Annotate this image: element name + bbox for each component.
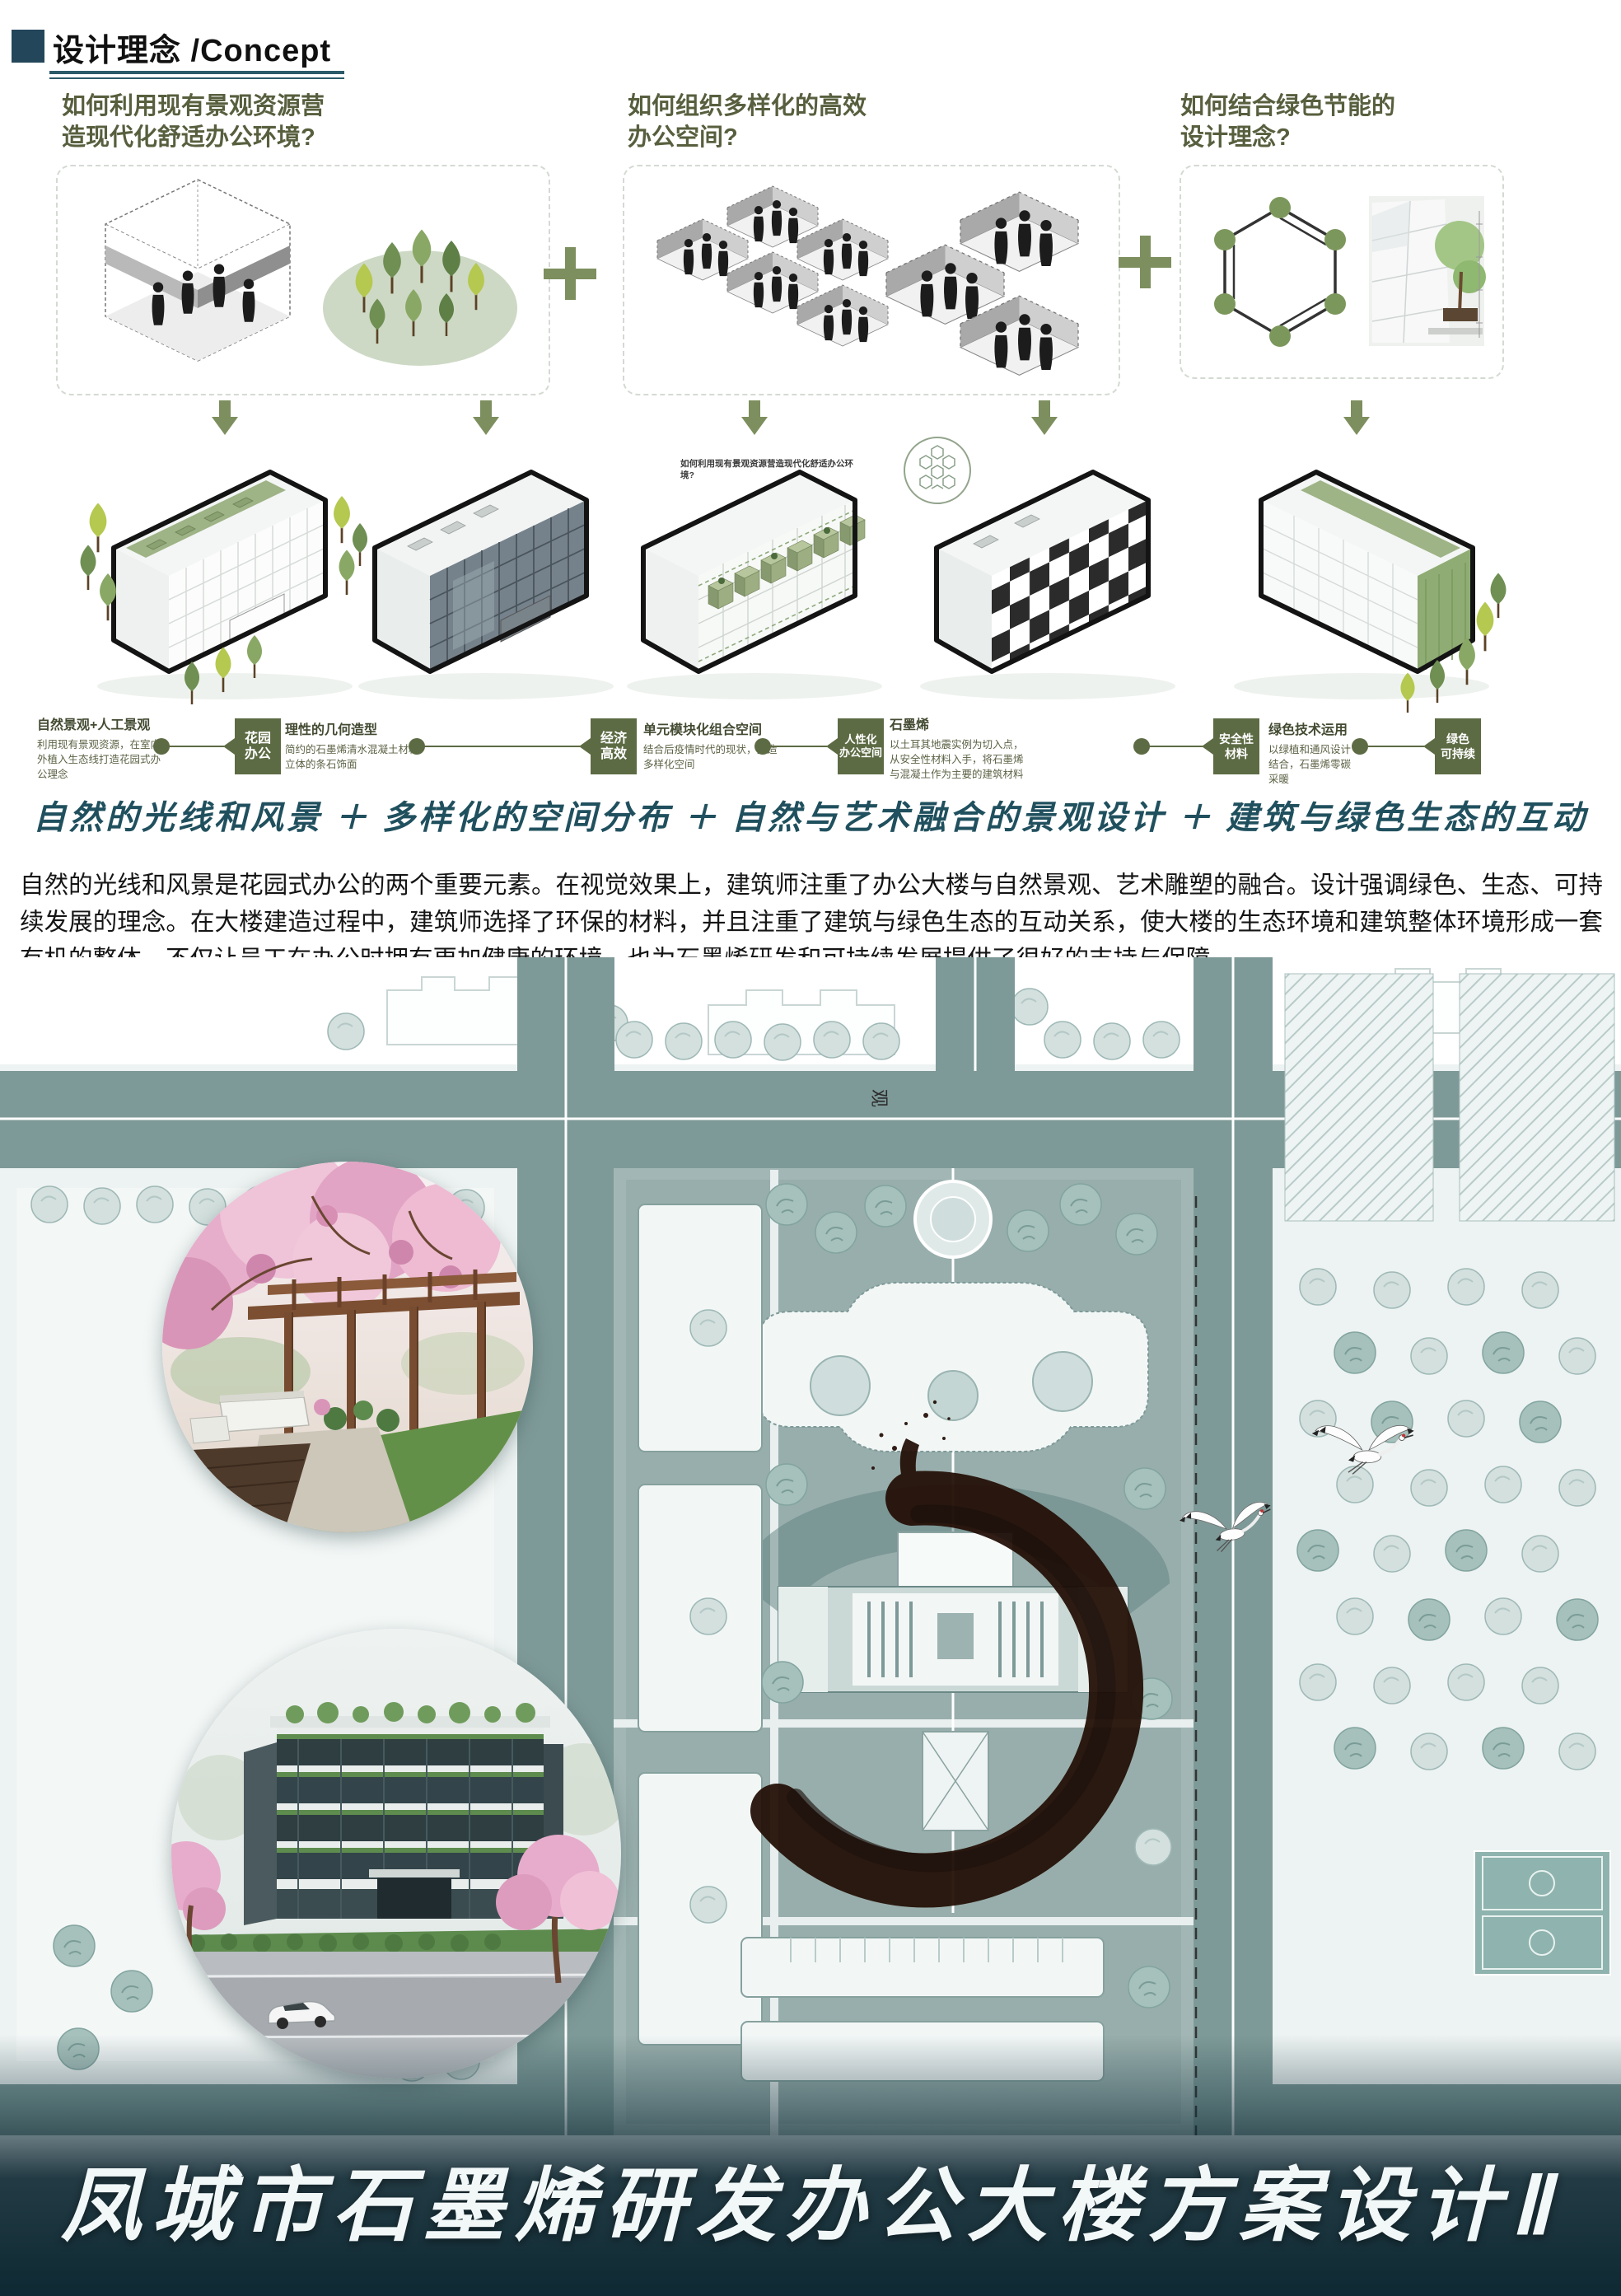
diagram-panel-graphene (1180, 165, 1504, 379)
connector-arrow (826, 738, 838, 755)
connector-line (769, 746, 827, 747)
node-garden-office: 花园办公 (235, 718, 281, 774)
chain-desc: 利用现有景观资源，在室内外植入生态线打造花园式办公理念 (37, 737, 169, 782)
plus-icon (544, 247, 596, 300)
graphene-pattern-icon (904, 437, 970, 503)
chain-title: 自然景观+人工景观 (37, 713, 169, 733)
node-economic-efficient: 经济高效 (591, 718, 637, 774)
node-green-sustainable: 绿色可持续 (1435, 718, 1481, 774)
axon-building-green-wall (1205, 424, 1518, 713)
connector-arrow (223, 738, 235, 755)
modular-office-boxes-diagram (624, 166, 1119, 394)
chain-block-green-tech: 绿色技术运用 以绿植和通风设计结合，石墨烯零碳采暖 (1268, 718, 1361, 787)
connector-arrow (579, 738, 591, 755)
connector-line (1148, 746, 1203, 747)
graphene-molecule-diagram (1181, 166, 1502, 377)
tree-cluster-diagram (323, 230, 517, 367)
office-box-cluster-left (657, 186, 888, 346)
connector-dot (153, 738, 170, 755)
office-cube-diagram (105, 180, 290, 361)
diagram-panel-modular-office (623, 165, 1120, 395)
connector-dot (1352, 738, 1368, 755)
axon-building-checker (891, 424, 1204, 713)
architecture-concept-board: 设计理念 /Concept 如何利用现有景观资源营 造现代化舒适办公环境? 如何… (0, 0, 1621, 2296)
connector-line (1366, 746, 1424, 747)
node-safety-material: 安全性材料 (1213, 718, 1259, 774)
connector-dot (1133, 738, 1150, 755)
office-cube-and-trees-diagram (58, 166, 549, 394)
basketball-court (1474, 1851, 1610, 1975)
connector-arrow (1423, 738, 1435, 755)
header-accent-square (12, 30, 44, 63)
diagram-panel-nature-office (56, 165, 550, 395)
chain-block-graphene: 石墨烯 以土耳其地震实例为切入点，从安全性材料入手，将石墨烯与混凝土作为主要的建… (890, 713, 1031, 782)
connector-dot (409, 738, 425, 755)
connector-line (168, 746, 224, 747)
question-landscape: 如何利用现有景观资源营 造现代化舒适办公环境? (62, 91, 325, 153)
chain-block-geometry: 理性的几何造型 简约的石墨烯清水混凝土材料 立体的条石饰面 (285, 718, 425, 772)
road-name-label: 观 (869, 1089, 890, 1107)
benzene-ring-icon (1214, 197, 1346, 347)
handwritten-concept-line: 自然的光线和风景 ＋ 多样化的空间分布 ＋ 自然与艺术融合的景观设计 ＋ 建筑与… (0, 791, 1621, 839)
project-title: 凤城市石墨烯研发办公大楼方案设计Ⅱ (0, 2140, 1621, 2257)
pergola-render-inset (162, 1162, 533, 1532)
connector-dot (754, 738, 771, 755)
office-box-cluster-right (886, 192, 1078, 375)
question-office-space: 如何组织多样化的高效 办公空间? (628, 91, 867, 153)
plus-icon (1119, 236, 1171, 288)
axon-annotation: 如何利用现有景观资源营造现代化舒适办公环境? (680, 458, 857, 481)
header-underline (49, 71, 344, 79)
connector-arrow (1202, 738, 1213, 755)
chain-block-landscape: 自然景观+人工景观 利用现有景观资源，在室内外植入生态线打造花园式办公理念 (37, 713, 169, 782)
connector-line (423, 746, 580, 747)
facade-photo (1369, 196, 1486, 346)
node-humanized-office: 人性化办公空间 (838, 718, 884, 774)
building-render-inset (171, 1629, 621, 2079)
axon-building-glass (329, 424, 642, 713)
section-title: 设计理念 /Concept (53, 25, 331, 70)
question-green-energy: 如何结合绿色节能的 设计理念? (1180, 91, 1395, 153)
